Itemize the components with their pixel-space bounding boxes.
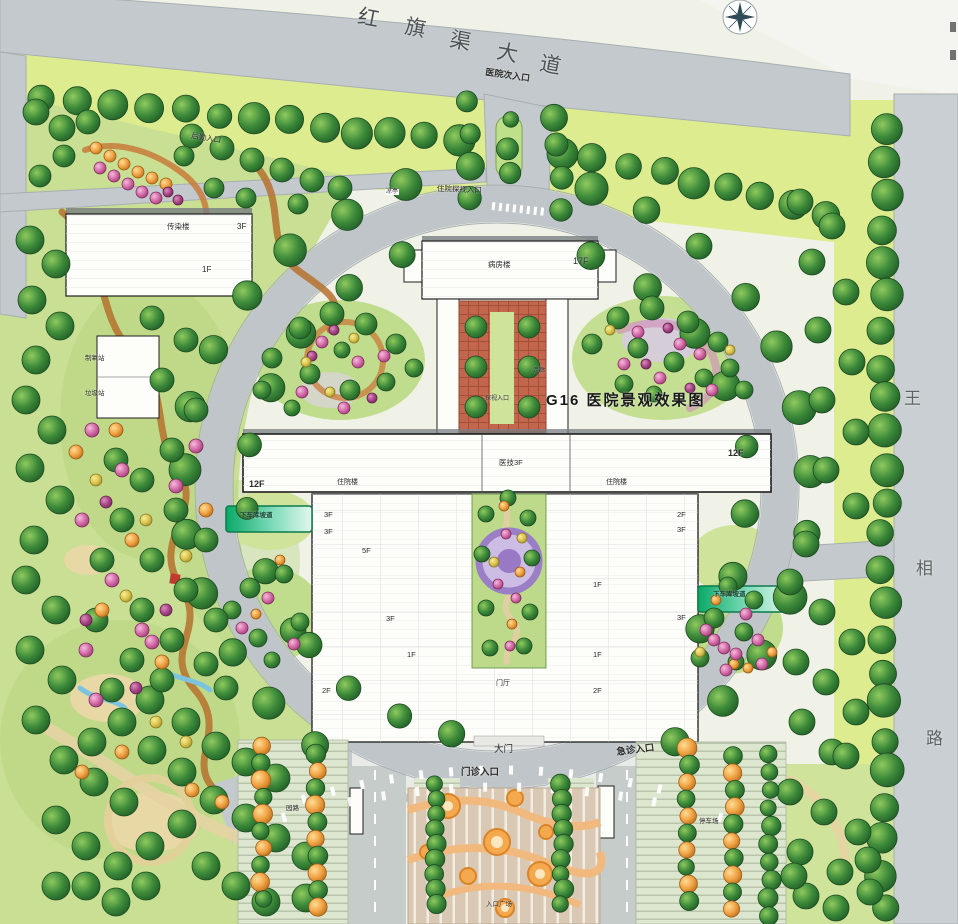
label-hongqiqu-char-1: 红 bbox=[356, 6, 381, 31]
label-hospital-secondary-entrance: 医院次入口 bbox=[485, 68, 531, 83]
label-wangxiang-char-3: 路 bbox=[926, 730, 943, 747]
label-main-gate: 大门 bbox=[494, 745, 513, 755]
label-ward-tower: 病房楼 bbox=[488, 261, 511, 269]
label-floors-9: 3F bbox=[677, 614, 686, 622]
label-inpatient-visit-entrance: 住院探视入口 bbox=[437, 185, 482, 194]
label-hongqiqu-char-3: 渠 bbox=[448, 29, 473, 54]
label-floors-2: 5F bbox=[362, 547, 371, 555]
label-oxygen-station: 制氧站 bbox=[85, 356, 105, 363]
label-floors-3: 3F bbox=[386, 615, 395, 623]
label-floors-8: 1F bbox=[593, 581, 602, 589]
label-hongqiqu-char-4: 大 bbox=[495, 41, 520, 66]
label-medtech-block: 医技3F bbox=[499, 459, 523, 467]
label-entry-hall: 门厅 bbox=[496, 680, 510, 687]
label-floors-6: 2F bbox=[677, 511, 686, 519]
label-floors-0: 3F bbox=[324, 511, 333, 519]
label-floors-1: 3F bbox=[324, 528, 333, 536]
label-entry-plaza: 入口广场 bbox=[486, 902, 512, 909]
label-ward-tower-floors: 17F bbox=[573, 257, 589, 266]
label-garage-ramp-east: 下车库坡道 bbox=[713, 592, 746, 599]
label-emergency-entrance: 急诊入口 bbox=[616, 743, 655, 757]
label-infectious-building: 传染楼 bbox=[167, 223, 190, 231]
label-floors-11: 2F bbox=[593, 687, 602, 695]
label-hongqiqu-char-5: 道 bbox=[538, 53, 563, 78]
label-infectious-floors-b: 1F bbox=[202, 266, 211, 274]
label-wangxiang-char-2: 相 bbox=[916, 560, 933, 577]
label-sheet-watermark: G16 医院景观效果图 bbox=[546, 393, 706, 408]
label-parking-lot: 停车场 bbox=[699, 819, 719, 826]
label-east-wing-floors: 12F bbox=[728, 449, 744, 458]
label-layer: 红旗渠大道王相路医院次入口住院探视入口后勤入口大门门诊入口急诊入口探视入口传染楼… bbox=[0, 0, 958, 924]
label-infectious-floors: 3F bbox=[237, 223, 246, 231]
label-outpatient-entrance: 门诊入口 bbox=[461, 768, 499, 778]
label-floors-4: 1F bbox=[407, 651, 416, 659]
label-hongqiqu-char-2: 旗 bbox=[403, 16, 428, 41]
label-garden-path: 园路 bbox=[286, 806, 299, 813]
label-service-entrance: 后勤入口 bbox=[191, 132, 222, 144]
label-inpatient-west: 住院楼 bbox=[337, 479, 358, 486]
label-courtyard-visit-entrance: 探视入口 bbox=[485, 396, 509, 402]
hospital-site-plan: 红旗渠大道王相路医院次入口住院探视入口后勤入口大门门诊入口急诊入口探视入口传染楼… bbox=[0, 0, 958, 924]
label-floors-5: 2F bbox=[322, 687, 331, 695]
label-wangxiang-char-1: 王 bbox=[904, 390, 921, 407]
label-garbage-station: 垃圾站 bbox=[85, 391, 105, 398]
label-pavilion: 凉亭 bbox=[385, 189, 399, 195]
label-west-wing-floors: 12F bbox=[249, 480, 265, 489]
label-inpatient-east: 住院楼 bbox=[606, 479, 627, 486]
label-floors-10: 1F bbox=[593, 651, 602, 659]
label-garage-ramp-west: 下车库坡道 bbox=[240, 513, 273, 520]
label-floors-7: 3F bbox=[677, 526, 686, 534]
label-corridor: 连廊 bbox=[533, 368, 545, 374]
